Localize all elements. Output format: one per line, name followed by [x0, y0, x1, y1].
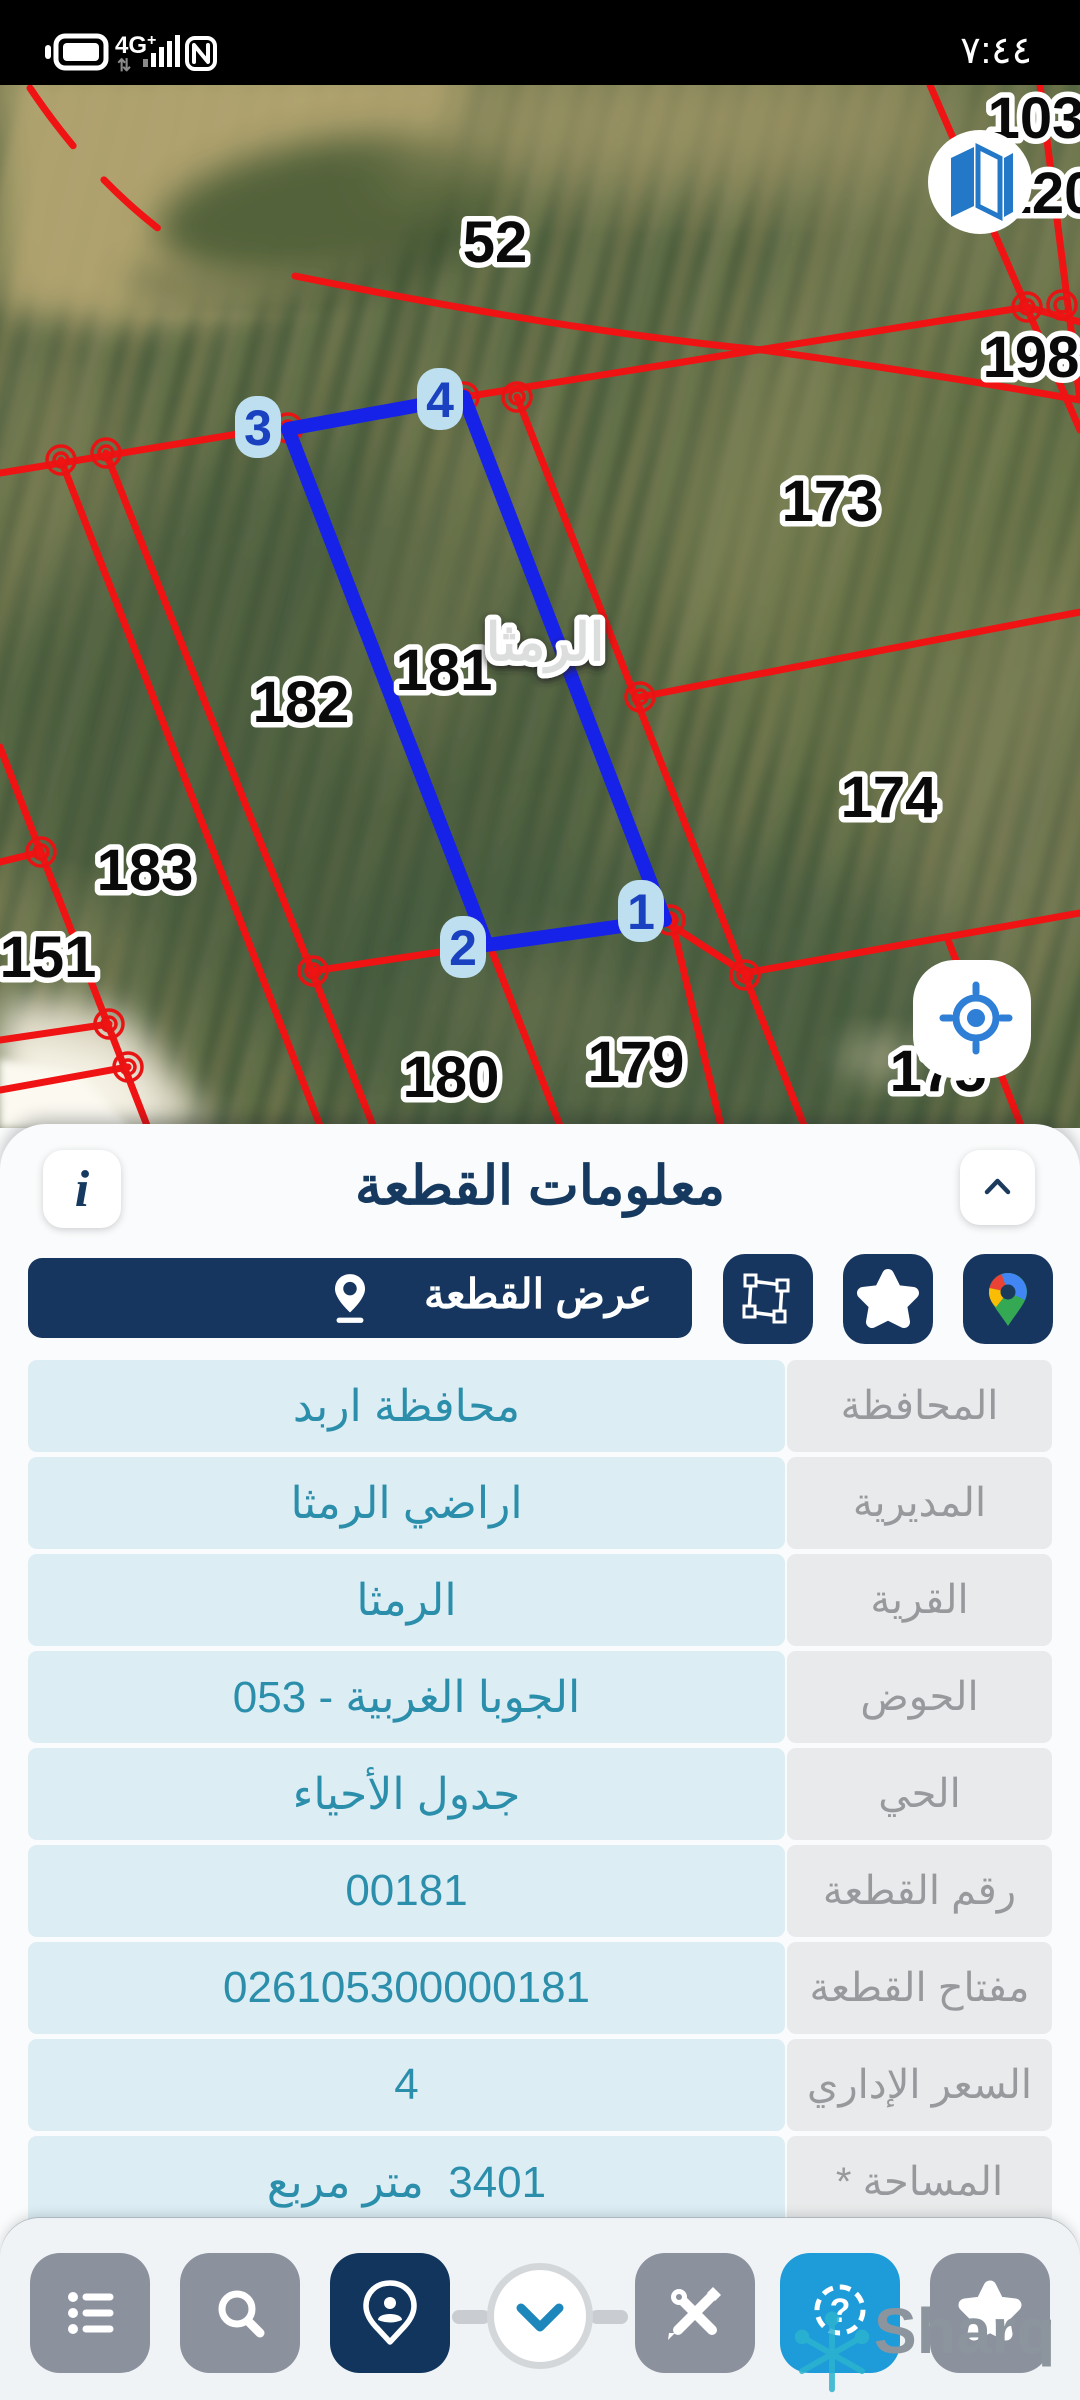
- svg-text:151: 151: [0, 925, 96, 990]
- svg-text:1: 1: [627, 884, 655, 940]
- svg-text:2: 2: [449, 920, 477, 976]
- svg-text:4G+: 4G+: [115, 32, 156, 59]
- svg-text:179: 179: [588, 1030, 685, 1095]
- svg-text:4: 4: [426, 372, 454, 428]
- svg-text:173: 173: [782, 469, 879, 534]
- svg-text:174: 174: [841, 765, 938, 830]
- svg-text:198: 198: [983, 325, 1080, 390]
- svg-text:182: 182: [253, 670, 350, 735]
- svg-text:180: 180: [403, 1045, 500, 1110]
- svg-text:3: 3: [244, 400, 272, 456]
- svg-text:52: 52: [463, 210, 528, 275]
- svg-text:٧:٤٤: ٧:٤٤: [960, 30, 1032, 72]
- svg-text:⇅: ⇅: [117, 56, 131, 75]
- svg-text:181: 181: [396, 638, 493, 703]
- svg-text:183: 183: [97, 838, 194, 903]
- svg-text:الرمثا: الرمثا: [486, 614, 604, 674]
